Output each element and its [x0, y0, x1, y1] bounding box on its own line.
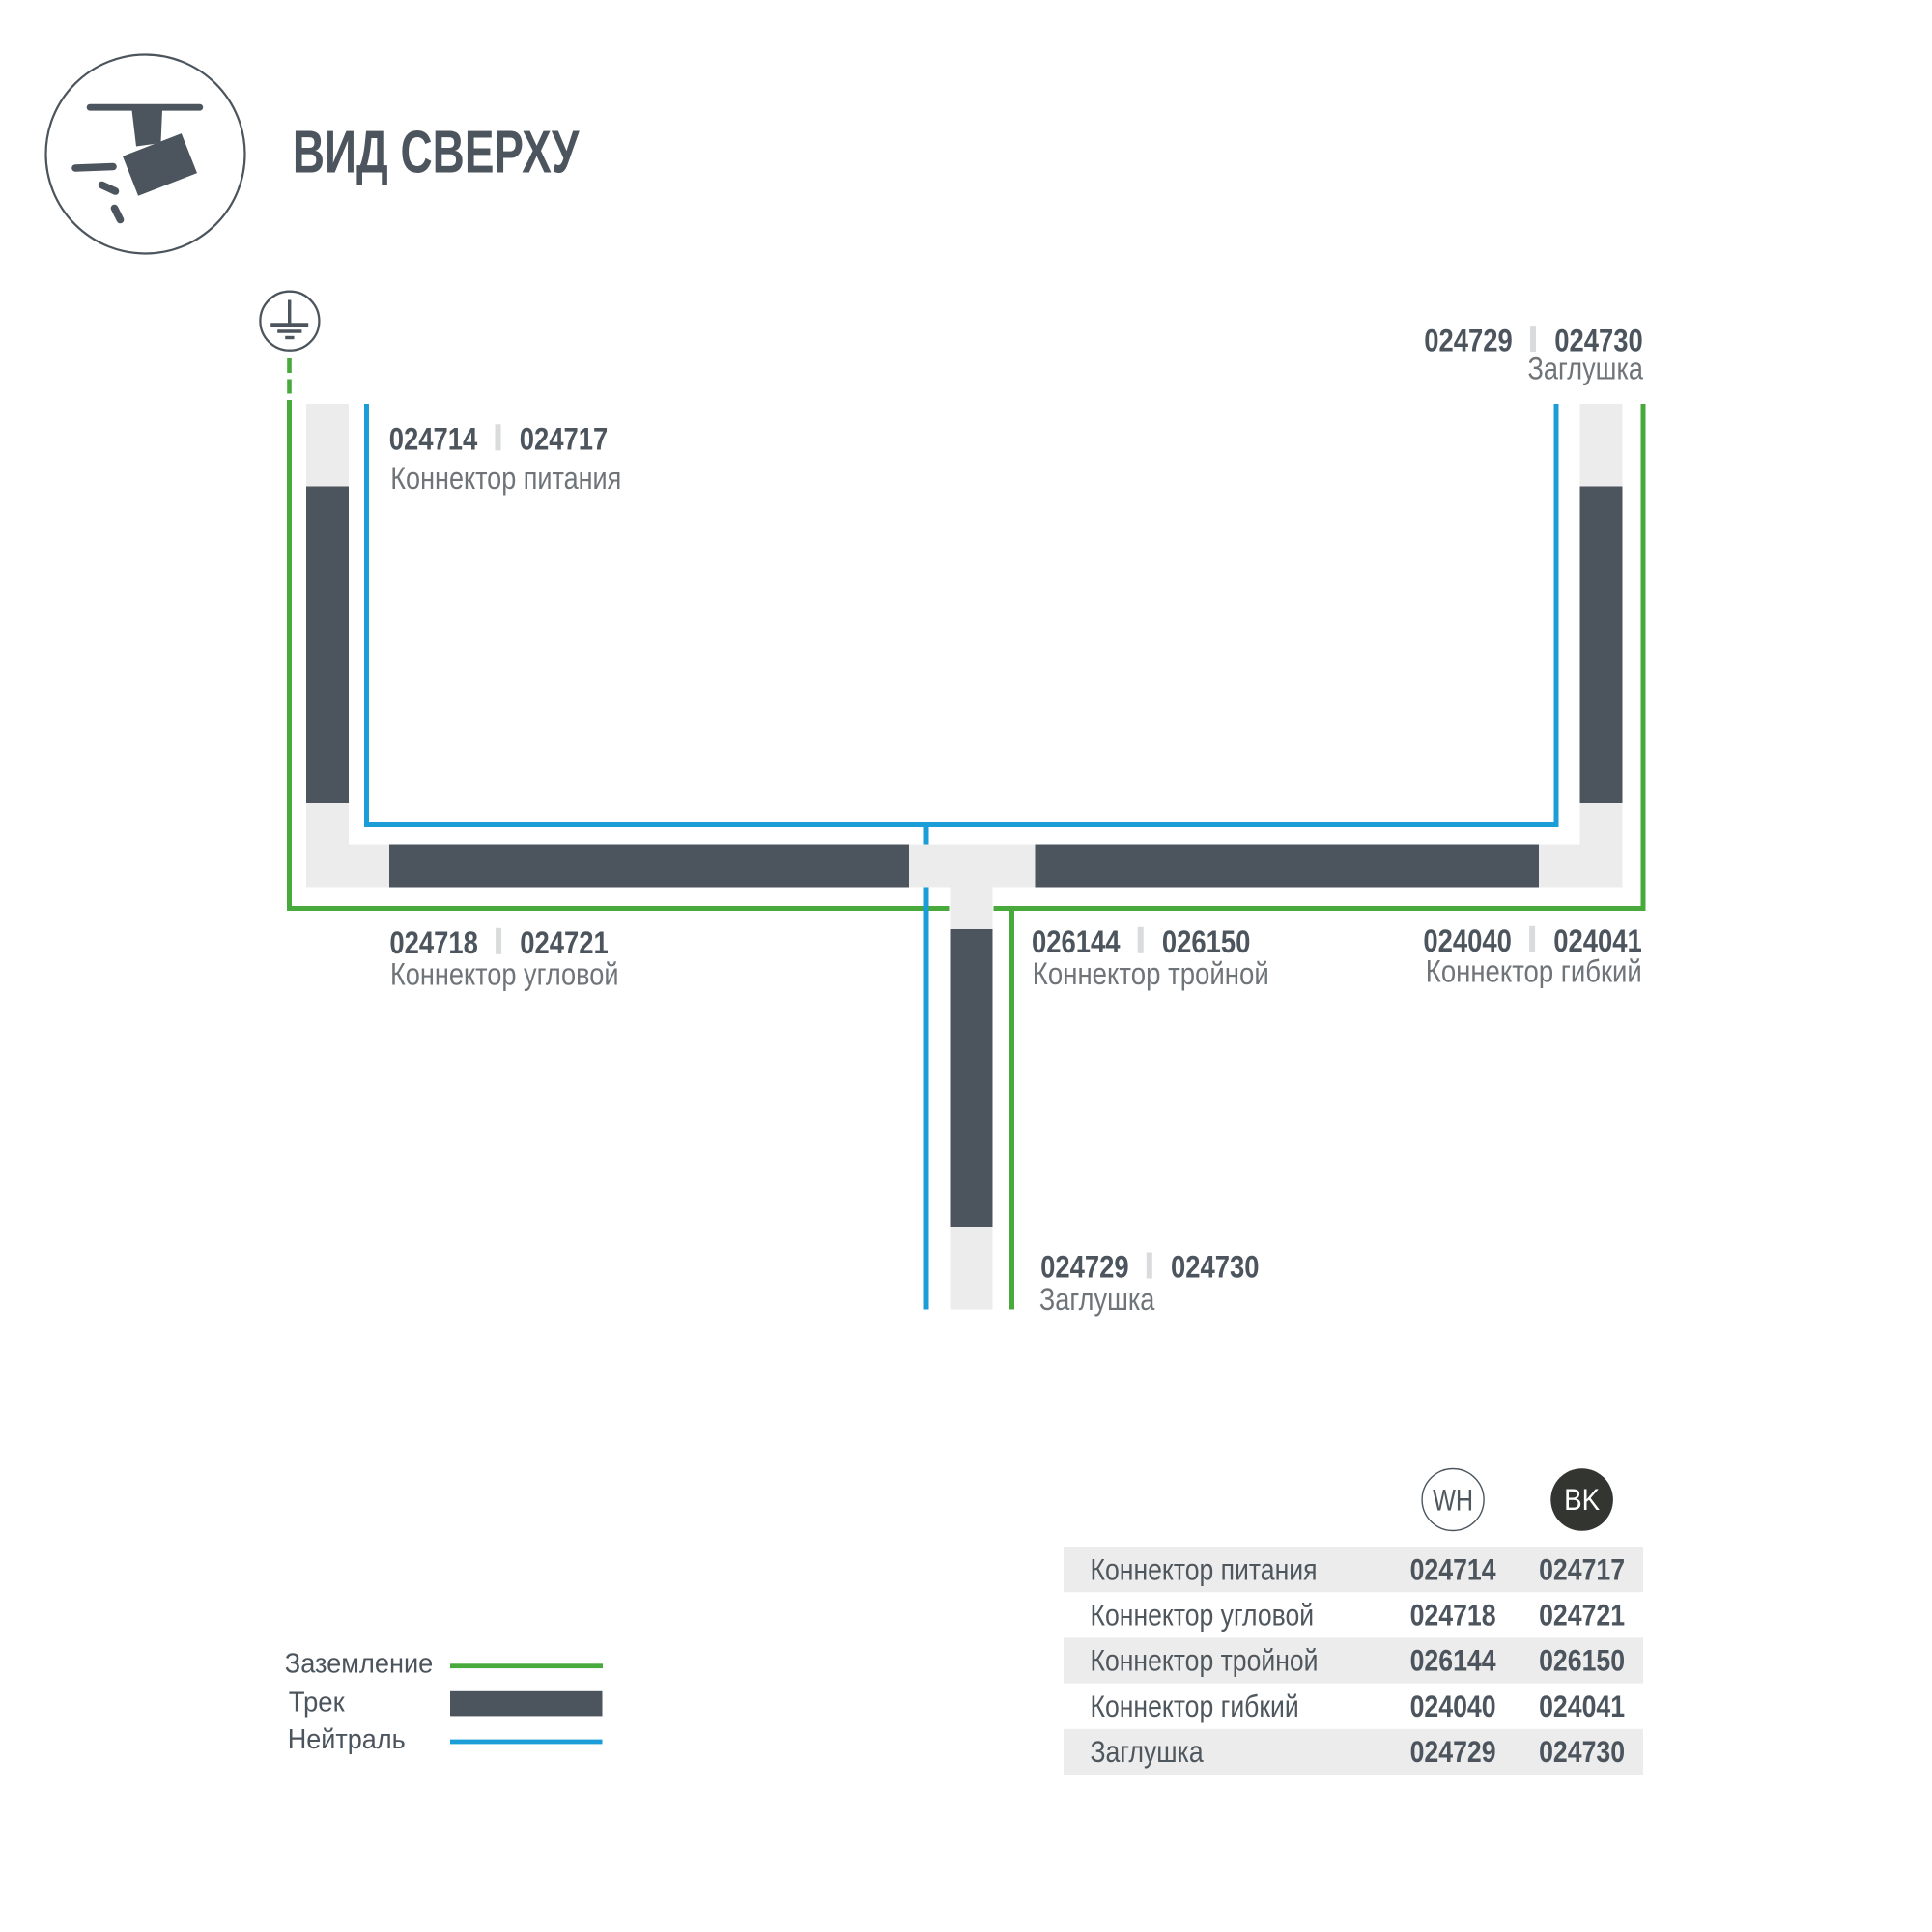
svg-text:Трек: Трек [289, 1688, 345, 1719]
svg-text:Коннектор тройной: Коннектор тройной [1091, 1644, 1319, 1678]
svg-text:024730: 024730 [1539, 1734, 1625, 1769]
svg-text:024718: 024718 [389, 924, 478, 960]
svg-text:ВИД СВЕРХУ: ВИД СВЕРХУ [293, 119, 580, 186]
svg-text:024729: 024729 [1424, 322, 1513, 357]
svg-text:Коннектор угловой: Коннектор угловой [390, 957, 619, 992]
svg-text:024729: 024729 [1040, 1249, 1129, 1285]
svg-text:024721: 024721 [520, 924, 609, 960]
svg-text:WH: WH [1433, 1483, 1473, 1517]
svg-text:026150: 026150 [1539, 1643, 1625, 1678]
svg-text:024041: 024041 [1539, 1689, 1625, 1723]
svg-text:024717: 024717 [1539, 1551, 1625, 1586]
svg-text:Заглушка: Заглушка [1528, 351, 1644, 385]
svg-text:024040: 024040 [1410, 1689, 1496, 1723]
svg-text:024717: 024717 [520, 421, 609, 457]
svg-text:024714: 024714 [389, 421, 478, 457]
svg-text:Заземление: Заземление [285, 1649, 434, 1680]
svg-text:Коннектор гибкий: Коннектор гибкий [1091, 1690, 1299, 1723]
svg-text:Коннектор тройной: Коннектор тройной [1033, 956, 1269, 991]
svg-text:024729: 024729 [1410, 1734, 1496, 1769]
svg-text:Коннектор гибкий: Коннектор гибкий [1426, 954, 1642, 989]
svg-text:024040: 024040 [1423, 923, 1512, 958]
svg-text:026144: 026144 [1032, 923, 1121, 959]
svg-text:024041: 024041 [1553, 923, 1642, 958]
svg-text:024721: 024721 [1539, 1598, 1625, 1633]
svg-text:Нейтраль: Нейтраль [288, 1724, 406, 1755]
svg-text:Коннектор угловой: Коннектор угловой [1091, 1599, 1315, 1633]
svg-text:Заглушка: Заглушка [1091, 1735, 1205, 1769]
svg-text:Заглушка: Заглушка [1039, 1282, 1155, 1317]
svg-text:Коннектор питания: Коннектор питания [1091, 1552, 1318, 1586]
svg-text:024730: 024730 [1171, 1249, 1260, 1285]
svg-text:026144: 026144 [1410, 1643, 1496, 1678]
svg-text:026150: 026150 [1162, 923, 1251, 959]
svg-text:024714: 024714 [1410, 1551, 1496, 1586]
svg-text:BK: BK [1564, 1483, 1600, 1517]
svg-text:024718: 024718 [1410, 1598, 1496, 1633]
svg-text:Коннектор питания: Коннектор питания [390, 461, 621, 496]
